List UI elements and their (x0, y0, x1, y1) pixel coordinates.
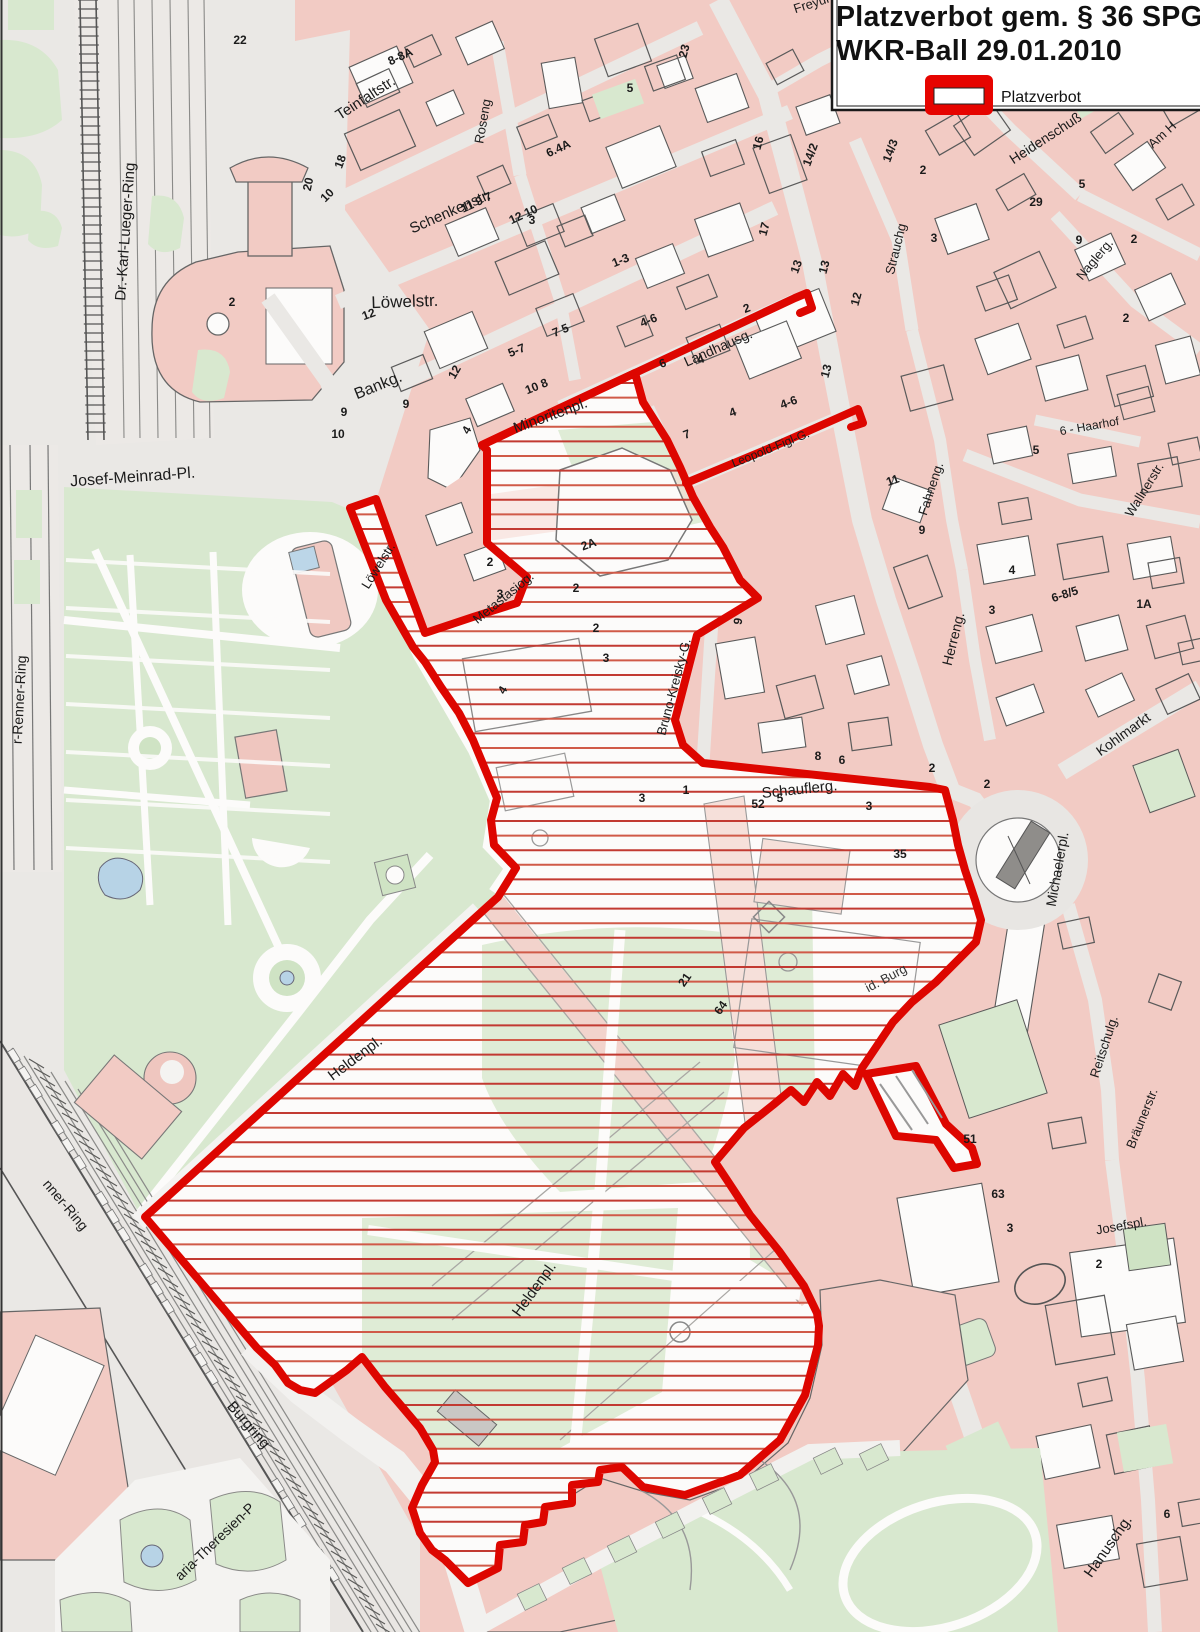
svg-text:9: 9 (919, 523, 926, 537)
svg-text:22: 22 (233, 33, 247, 47)
svg-text:2: 2 (573, 581, 580, 595)
svg-text:52: 52 (751, 797, 765, 811)
svg-text:Löwelstr.: Löwelstr. (371, 291, 439, 312)
svg-text:2: 2 (229, 295, 236, 309)
svg-text:2: 2 (1123, 311, 1130, 325)
svg-text:4: 4 (1009, 563, 1016, 577)
svg-text:3: 3 (603, 651, 610, 665)
svg-text:5: 5 (627, 81, 634, 95)
svg-text:5: 5 (777, 791, 784, 805)
svg-text:Platzverbot gem. § 36 SPG: Platzverbot gem. § 36 SPG (836, 1, 1200, 33)
svg-text:5: 5 (1033, 443, 1040, 457)
svg-text:2: 2 (487, 555, 494, 569)
svg-text:Platzverbot: Platzverbot (1001, 89, 1082, 106)
svg-text:8: 8 (815, 749, 822, 763)
svg-text:10: 10 (331, 427, 345, 441)
svg-text:9: 9 (341, 405, 348, 419)
svg-text:3: 3 (497, 587, 504, 601)
svg-text:29: 29 (1029, 195, 1043, 209)
svg-text:3: 3 (989, 603, 996, 617)
svg-text:3: 3 (1007, 1221, 1014, 1235)
svg-text:1A: 1A (1136, 597, 1152, 611)
svg-text:3: 3 (529, 213, 536, 227)
svg-text:3: 3 (639, 791, 646, 805)
svg-text:2: 2 (1096, 1257, 1103, 1271)
svg-text:3: 3 (866, 799, 873, 813)
svg-text:9: 9 (1076, 233, 1083, 247)
svg-text:6: 6 (1164, 1507, 1171, 1521)
svg-text:1: 1 (683, 783, 690, 797)
svg-text:2: 2 (984, 777, 991, 791)
svg-text:6: 6 (839, 753, 846, 767)
svg-text:2: 2 (1131, 232, 1138, 246)
svg-text:2: 2 (929, 761, 936, 775)
svg-text:5: 5 (1079, 177, 1086, 191)
svg-text:63: 63 (991, 1187, 1005, 1201)
svg-text:9: 9 (403, 397, 410, 411)
svg-text:2: 2 (920, 163, 927, 177)
svg-text:3: 3 (931, 231, 938, 245)
svg-text:2: 2 (593, 621, 600, 635)
svg-text:51: 51 (963, 1132, 977, 1146)
svg-text:WKR-Ball 29.01.2010: WKR-Ball 29.01.2010 (836, 35, 1122, 67)
svg-text:35: 35 (893, 847, 907, 861)
